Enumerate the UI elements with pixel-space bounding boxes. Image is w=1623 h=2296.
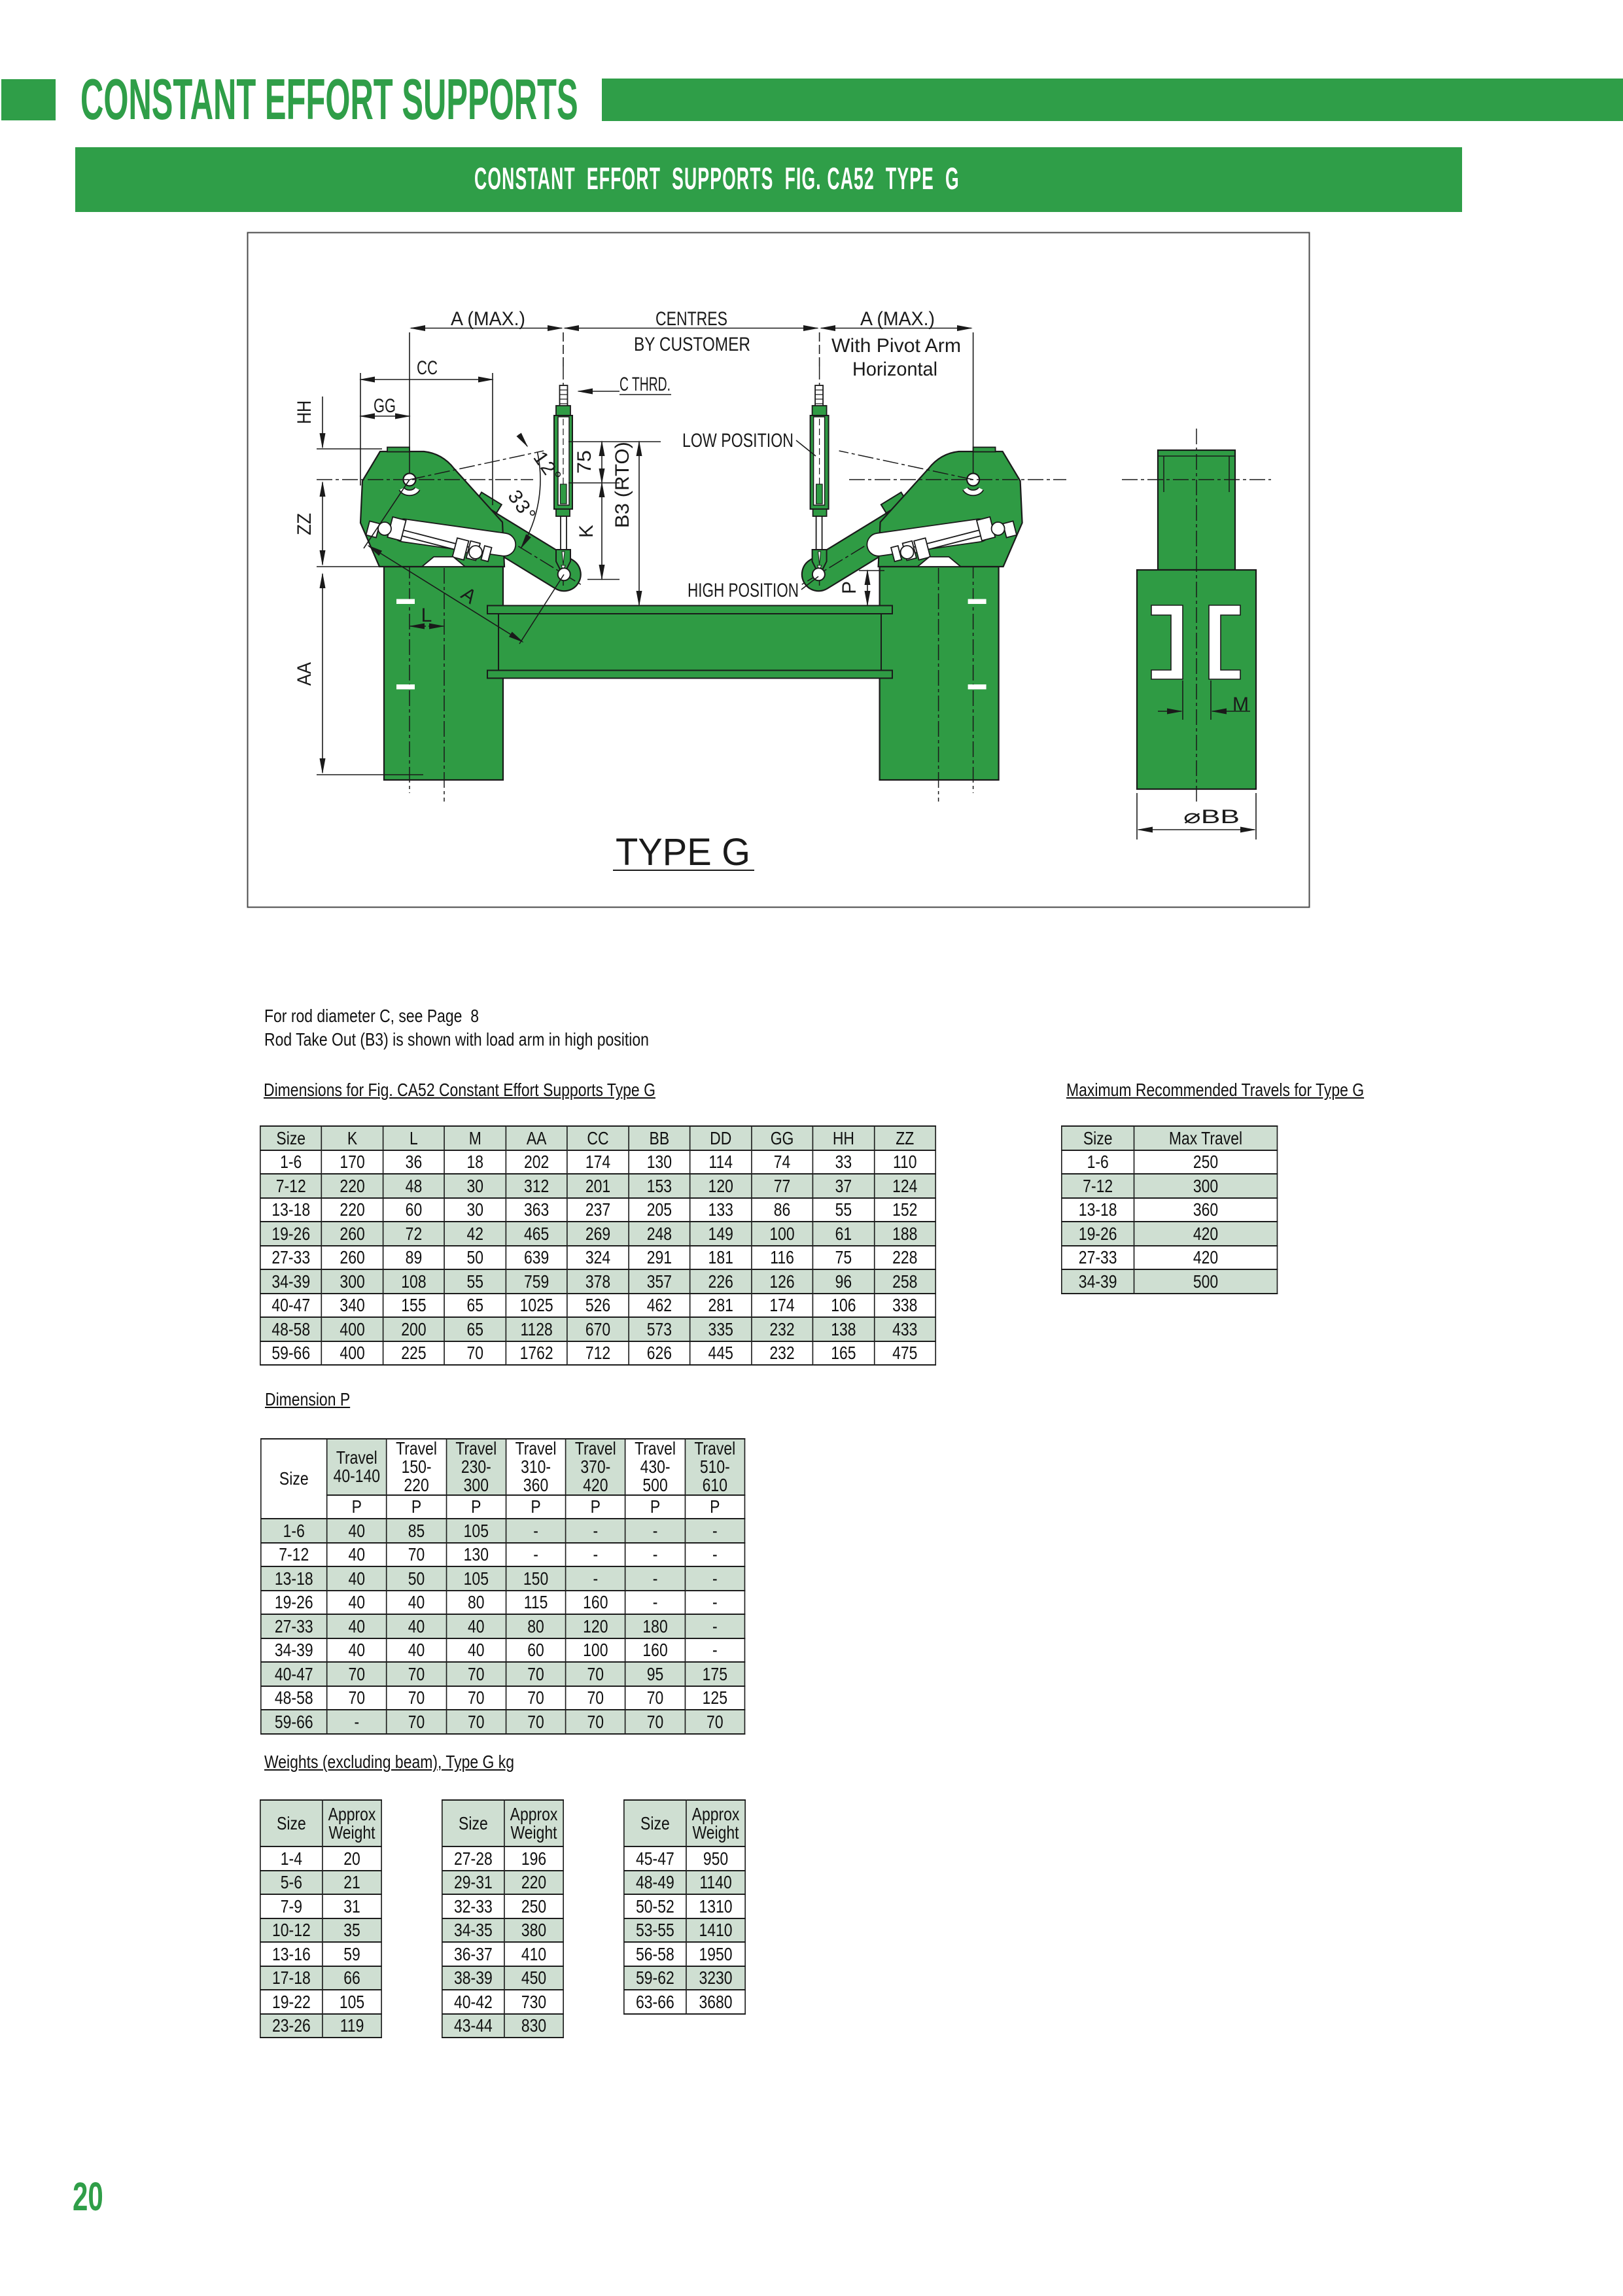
svg-text:TYPE G: TYPE G [616, 831, 750, 874]
svg-text:CENTRES: CENTRES [655, 308, 727, 330]
svg-text:C THRD.: C THRD. [620, 374, 671, 395]
svg-text:AA: AA [294, 662, 315, 686]
svg-text:HIGH POSITION: HIGH POSITION [688, 580, 799, 601]
svg-text:CC: CC [417, 357, 438, 379]
svg-text:M: M [1232, 694, 1249, 715]
svg-text:P: P [839, 581, 860, 594]
svg-text:LOW POSITION: LOW POSITION [682, 430, 794, 451]
svg-text:⌀BB: ⌀BB [1183, 806, 1240, 828]
svg-text:75: 75 [574, 450, 595, 474]
svg-text:Horizontal: Horizontal [852, 359, 937, 380]
svg-text:B3 (RTO): B3 (RTO) [612, 442, 633, 528]
svg-text:With Pivot Arm: With Pivot Arm [831, 335, 961, 357]
svg-text:ZZ: ZZ [294, 513, 315, 535]
svg-text:HH: HH [294, 400, 315, 424]
svg-text:33°: 33° [504, 486, 540, 526]
svg-text:BY CUSTOMER: BY CUSTOMER [634, 334, 750, 355]
svg-text:A (MAX.): A (MAX.) [860, 308, 935, 330]
svg-text:A (MAX.): A (MAX.) [451, 308, 525, 330]
svg-text:L: L [421, 605, 432, 626]
svg-text:K: K [576, 525, 597, 538]
svg-text:GG: GG [374, 395, 396, 417]
